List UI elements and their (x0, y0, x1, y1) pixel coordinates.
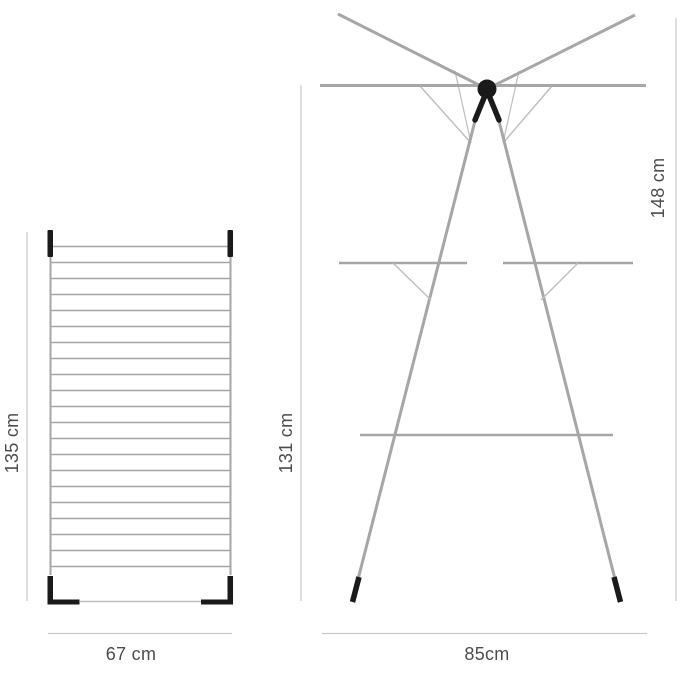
diagram-canvas: 135 cm 67 cm (0, 0, 686, 686)
end-cap-left (48, 230, 54, 257)
base-width-label: 85cm (464, 644, 509, 664)
foot-tip-right (614, 577, 621, 602)
top-brace-right (503, 86, 552, 143)
folded-width-label: 67 cm (106, 644, 157, 664)
arm-left (338, 14, 487, 89)
product-dimension-diagram: 135 cm 67 cm (0, 0, 686, 686)
leg-left (353, 117, 476, 599)
foot-right-horizontal (201, 600, 233, 605)
rung-group (51, 247, 231, 567)
end-cap-right (228, 230, 234, 257)
total-height-label: 148 cm (648, 158, 668, 219)
folded-rack-view (48, 230, 234, 605)
hub (478, 80, 497, 99)
tension-wire-right (503, 71, 519, 143)
top-brace-left (420, 86, 471, 143)
frame-height-label: 131 cm (276, 413, 296, 474)
tension-wire-left (455, 71, 471, 143)
foot-left-horizontal (48, 600, 80, 605)
folded-height-label: 135 cm (2, 413, 22, 474)
leg-right (498, 117, 620, 599)
standing-rack-view (320, 14, 646, 602)
folded-view-dimensions: 135 cm 67 cm (2, 232, 232, 664)
foot-tip-left (353, 577, 360, 602)
middle-brace-left (393, 263, 431, 300)
arm-right (487, 15, 635, 89)
middle-brace-right (541, 263, 578, 300)
